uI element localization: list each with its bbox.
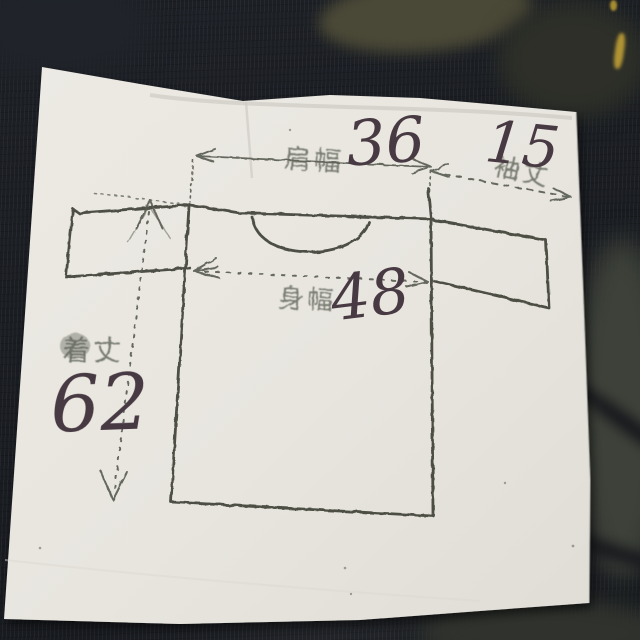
body-length-value: 62 bbox=[49, 357, 151, 450]
body-width-label: 身幅 bbox=[277, 284, 337, 317]
diagram-photo: 肩幅 袖丈 身幅 着丈 36 15 48 62 bbox=[0, 0, 640, 640]
sleeve-length-value: 15 bbox=[482, 107, 563, 182]
shoulder-width-value: 36 bbox=[344, 102, 428, 180]
body-width-value: 48 bbox=[325, 253, 413, 335]
photo-stage: 肩幅 袖丈 身幅 着丈 36 15 48 62 bbox=[0, 0, 640, 640]
shoulder-width-label: 肩幅 bbox=[283, 144, 345, 178]
